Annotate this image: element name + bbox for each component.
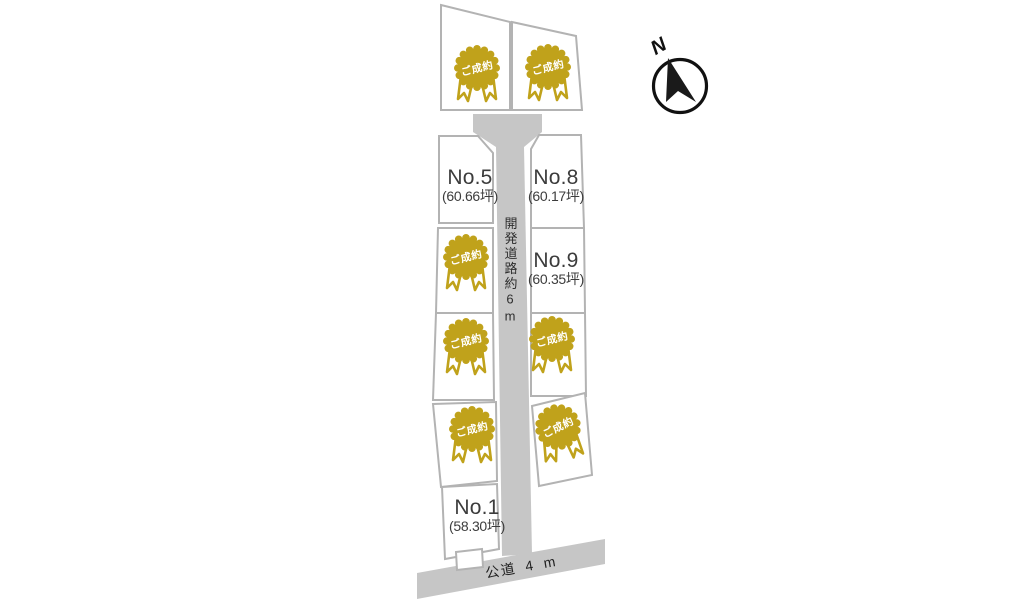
lot-no8-name: No.8 bbox=[528, 167, 584, 188]
lot-no9-area: (60.35坪) bbox=[528, 271, 584, 289]
lot-no8-area: (60.17坪) bbox=[528, 188, 584, 206]
lot-no9-label: No.9 (60.35坪) bbox=[528, 250, 584, 289]
lot-no1-name: No.1 bbox=[449, 497, 505, 518]
development-road-label: 開発道路約6m bbox=[501, 217, 520, 326]
lot-no5-name: No.5 bbox=[442, 167, 498, 188]
north-compass bbox=[654, 58, 707, 113]
site-plan-page: ご成約 No.5 (60.66坪) bbox=[0, 0, 1024, 604]
lot-no1-notch bbox=[456, 549, 483, 570]
lot-no1-label: No.1 (58.30坪) bbox=[449, 497, 505, 536]
lot-no8-label: No.8 (60.17坪) bbox=[528, 167, 584, 206]
lot-no5-label: No.5 (60.66坪) bbox=[442, 167, 498, 206]
lot-no9-name: No.9 bbox=[528, 250, 584, 271]
lot-no5-area: (60.66坪) bbox=[442, 188, 498, 206]
lot-no1-area: (58.30坪) bbox=[449, 518, 505, 536]
